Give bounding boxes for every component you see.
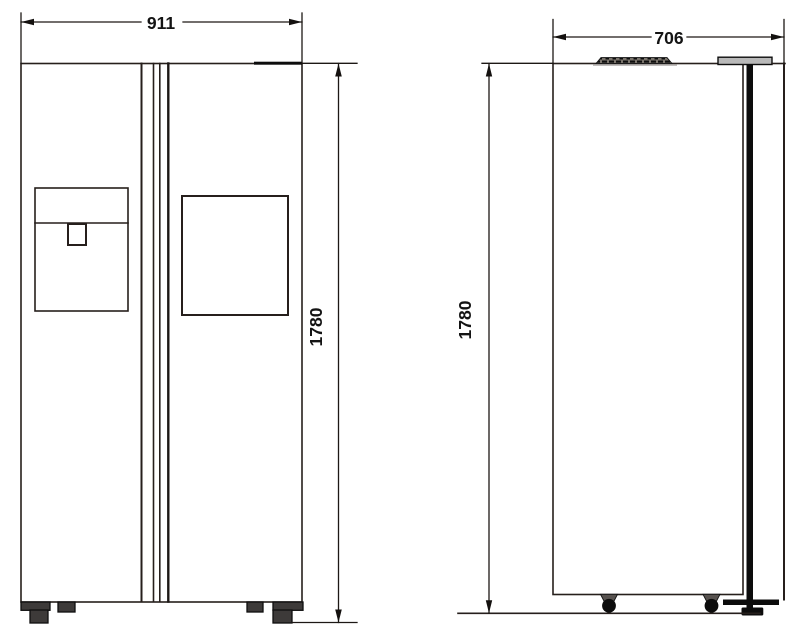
dispenser-outline	[35, 188, 128, 311]
front-right-roller	[247, 602, 263, 612]
front-caster-wheel	[602, 599, 616, 613]
arrow-right-icon	[771, 34, 784, 41]
side-cabinet-outline	[553, 64, 743, 595]
front-view	[21, 62, 303, 623]
arrow-down-icon	[335, 610, 342, 623]
door-bottom-edge	[723, 600, 779, 606]
dispenser-paddle	[68, 224, 86, 245]
arrow-down-icon	[486, 600, 492, 613]
vent-grille-shadow	[593, 64, 677, 66]
front-feet	[21, 602, 303, 623]
front-left-roller	[58, 602, 75, 612]
refrigerator-drawing: 911 1780 706 1780	[0, 0, 805, 633]
rear-caster	[703, 594, 720, 612]
side-view	[458, 57, 785, 615]
front-cabinet-outline	[21, 64, 302, 603]
door-hinge-pillar	[747, 64, 754, 605]
front-caster	[601, 594, 618, 612]
dim-side-height: 1780	[455, 63, 553, 613]
top-hinge-cap	[718, 57, 772, 64]
front-top-hinge-cover	[254, 62, 302, 65]
front-left-foot	[30, 610, 48, 623]
dimension-drawing-canvas: 911 1780 706 1780	[0, 0, 805, 633]
front-right-foot	[273, 610, 292, 623]
arrow-up-icon	[486, 64, 492, 77]
front-width-label: 911	[147, 13, 175, 33]
front-height-label: 1780	[306, 307, 326, 346]
side-depth-label: 706	[654, 28, 683, 48]
door-display-panel	[182, 196, 288, 315]
dim-front-width: 911	[21, 13, 302, 64]
dispenser	[35, 188, 128, 311]
arrow-left-icon	[553, 34, 566, 41]
side-height-label: 1780	[455, 300, 475, 339]
door-foot	[742, 608, 764, 616]
arrow-up-icon	[335, 64, 342, 77]
front-right-base	[273, 602, 303, 610]
arrow-left-icon	[21, 19, 34, 26]
front-left-base	[21, 602, 50, 610]
arrow-right-icon	[289, 19, 302, 26]
vent-grille	[596, 58, 672, 64]
rear-caster-wheel	[705, 599, 719, 613]
